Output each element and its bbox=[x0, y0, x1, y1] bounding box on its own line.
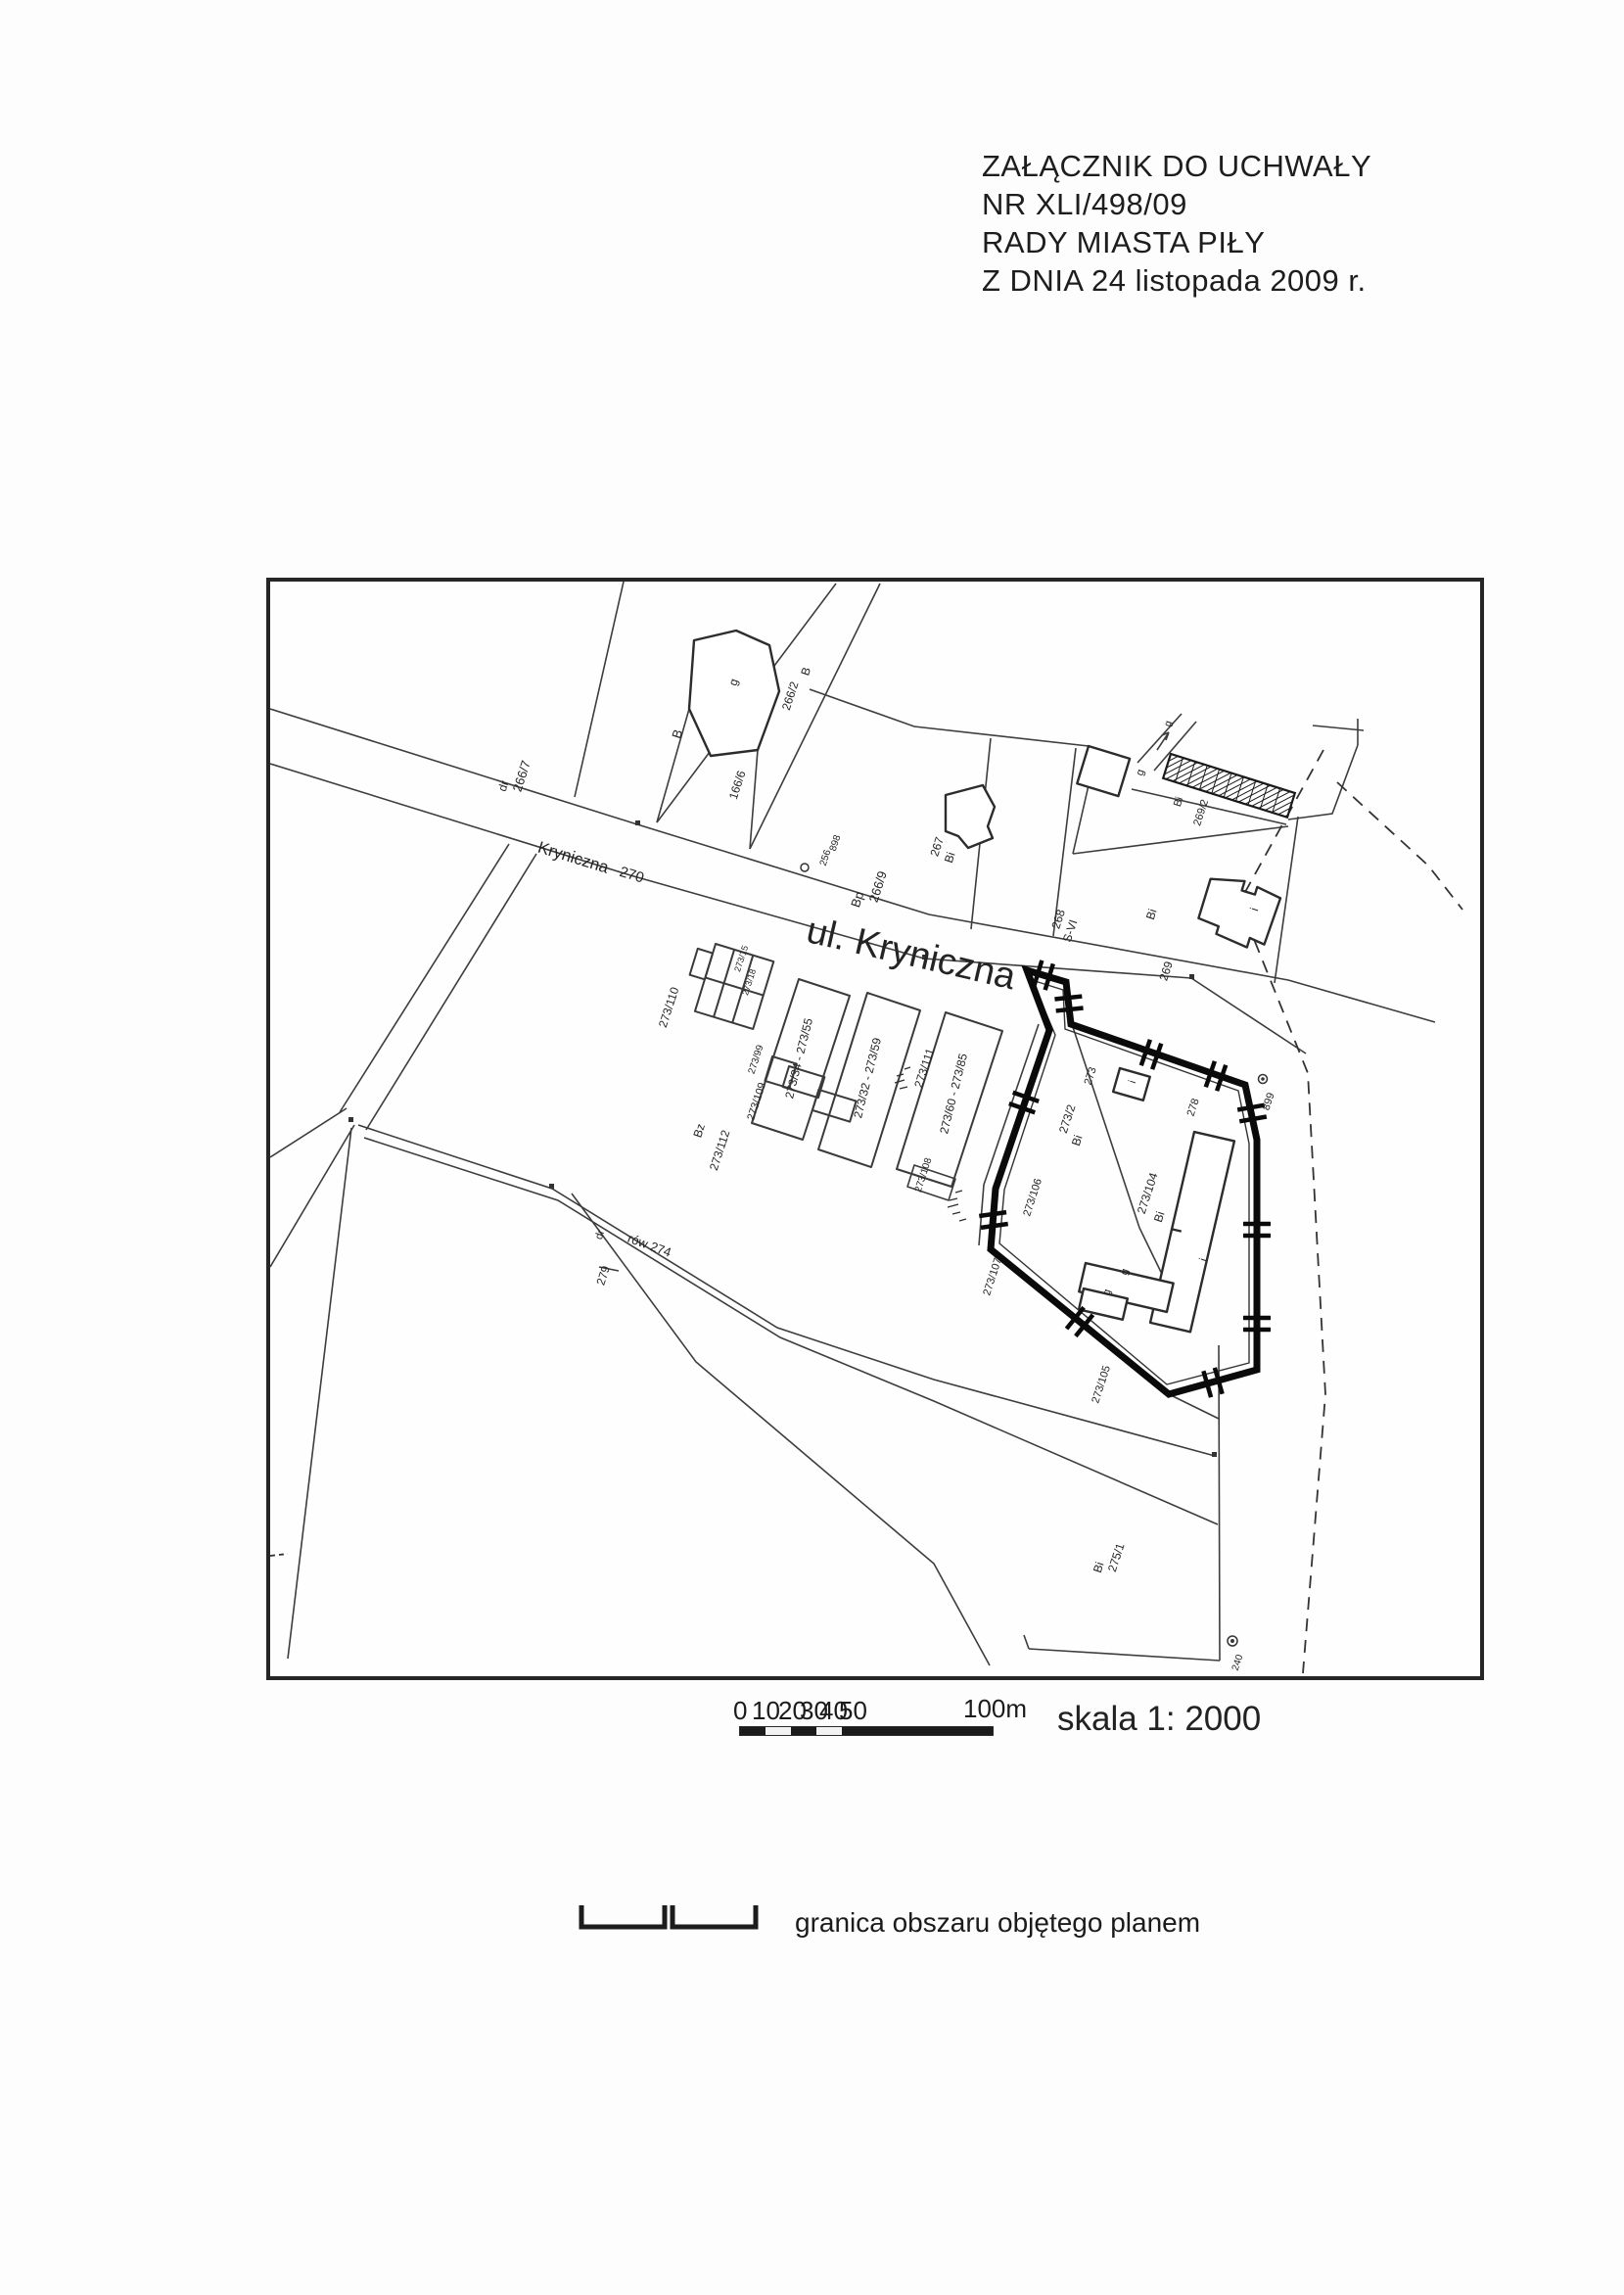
map-label: Bi bbox=[942, 851, 958, 865]
map-label: 270 bbox=[618, 864, 646, 887]
map-label: g bbox=[1163, 720, 1175, 728]
plan-boundary-symbol bbox=[578, 1897, 773, 1937]
map-label: Bi bbox=[1069, 1134, 1086, 1147]
map-label: 166/6 bbox=[726, 769, 749, 801]
header-line: RADY MIASTA PIŁY bbox=[982, 223, 1371, 261]
page: ZAŁĄCZNIK DO UCHWAŁYNR XLI/498/09RADY MI… bbox=[0, 0, 1624, 2295]
map-label: 273 bbox=[1083, 1065, 1099, 1086]
scale-bar-segment bbox=[842, 1727, 867, 1735]
decree-attachment-title: ZAŁĄCZNIK DO UCHWAŁYNR XLI/498/09RADY MI… bbox=[982, 147, 1371, 300]
map-label: 269 bbox=[1156, 960, 1176, 983]
map-label: 899 bbox=[1261, 1091, 1277, 1111]
map-label: 273/107 bbox=[981, 1256, 1004, 1297]
map-label: 273/109 bbox=[745, 1081, 768, 1122]
map-canvas: Kryniczna270ul. Kryniczna266/7drBg166/62… bbox=[270, 582, 1480, 1676]
scale-tick-label: 50 bbox=[839, 1696, 867, 1726]
dashed-boundary-lines bbox=[270, 750, 1462, 1673]
map-label: 269/2 bbox=[1191, 798, 1211, 827]
map-label: 273/32 - 273/59 bbox=[851, 1036, 884, 1119]
map-label: 898 bbox=[828, 833, 844, 853]
map-label: Bi bbox=[1172, 796, 1185, 809]
map-label: 266/2 bbox=[779, 679, 802, 712]
legend-label: granica obszaru objętego planem bbox=[795, 1907, 1200, 1939]
map-label: Bi bbox=[1151, 1210, 1168, 1224]
survey-points bbox=[348, 820, 1217, 1457]
map-label: 273/110 bbox=[656, 985, 682, 1029]
map-label: 266/9 bbox=[866, 869, 890, 905]
map-label: 273/99 bbox=[747, 1044, 766, 1076]
map-label: Bi bbox=[1090, 1561, 1107, 1574]
scale-bar-segment bbox=[867, 1727, 993, 1735]
map-label: 273/60 - 273/85 bbox=[937, 1052, 970, 1135]
map-label: 273/111 bbox=[911, 1047, 937, 1090]
map-label: Bz bbox=[690, 1122, 708, 1140]
scale-bar-segment bbox=[766, 1727, 791, 1735]
map-label: 266/7 bbox=[510, 759, 534, 794]
scale-ratio: skala 1: 2000 bbox=[1057, 1700, 1261, 1739]
cadastral-map: Kryniczna270ul. Kryniczna266/7drBg166/62… bbox=[266, 578, 1484, 1680]
map-label: Bp bbox=[848, 890, 866, 910]
scale-bar-segment bbox=[791, 1727, 816, 1735]
scale-tick-label: 10 bbox=[752, 1696, 780, 1726]
header-line: ZAŁĄCZNIK DO UCHWAŁY bbox=[982, 147, 1371, 185]
header-line: Z DNIA 24 listopada 2009 r. bbox=[982, 261, 1371, 300]
map-label: Kryniczna bbox=[535, 838, 611, 877]
map-label: B bbox=[798, 666, 813, 678]
parcel-lines bbox=[270, 582, 1435, 1665]
map-label: 273/104 bbox=[1135, 1171, 1161, 1216]
map-label: 279 bbox=[593, 1264, 613, 1288]
scale-bar-segment bbox=[740, 1727, 766, 1735]
map-label: g bbox=[1134, 768, 1146, 777]
map-label: 240 bbox=[1230, 1653, 1246, 1672]
map-label: 273/2 bbox=[1056, 1102, 1079, 1135]
map-label: 273/112 bbox=[707, 1128, 733, 1172]
header-line: NR XLI/498/09 bbox=[982, 185, 1371, 223]
map-label: 273/34 - 273/55 bbox=[782, 1016, 815, 1100]
map-label: Bi bbox=[1143, 908, 1160, 921]
plan-boundary-ticks bbox=[979, 960, 1271, 1397]
map-label: 278 bbox=[1185, 1097, 1202, 1117]
map-label: 273/106 bbox=[1021, 1177, 1044, 1218]
map-label: ul. Kryniczna bbox=[803, 910, 1020, 998]
map-label: dr bbox=[495, 779, 512, 793]
map-label: 275/1 bbox=[1105, 1541, 1128, 1573]
scale-bar bbox=[739, 1726, 994, 1736]
map-label: rów 274 bbox=[626, 1231, 673, 1260]
scale-end-label: 100m bbox=[963, 1694, 1027, 1724]
scale-tick-label: 0 bbox=[733, 1696, 747, 1726]
map-label: 273/105 bbox=[1090, 1364, 1113, 1405]
scale-bar-segment bbox=[816, 1727, 842, 1735]
